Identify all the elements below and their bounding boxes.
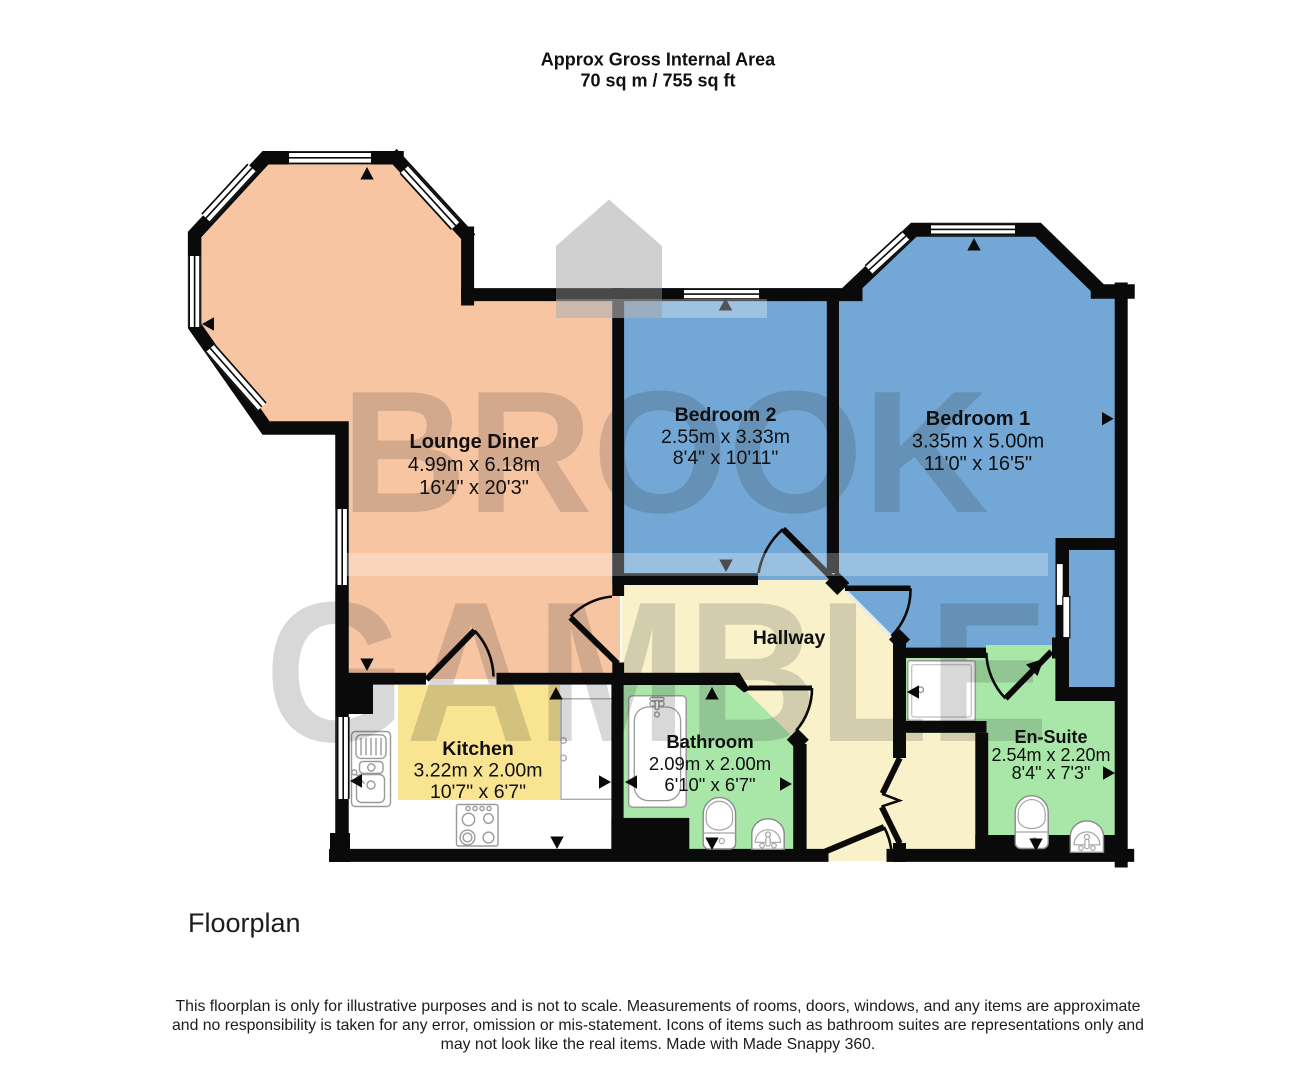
svg-text:Lounge Diner: Lounge Diner	[410, 431, 539, 453]
svg-text:and no responsibility is taken: and no responsibility is taken for any e…	[172, 1017, 1144, 1034]
svg-text:2.55m x 3.33m: 2.55m x 3.33m	[661, 426, 790, 448]
svg-text:70 sq m / 755 sq ft: 70 sq m / 755 sq ft	[580, 71, 735, 91]
svg-text:8'4" x 10'11": 8'4" x 10'11"	[673, 447, 779, 469]
svg-text:Floorplan: Floorplan	[188, 908, 301, 938]
svg-text:Bathroom: Bathroom	[666, 731, 753, 752]
svg-text:8'4" x 7'3": 8'4" x 7'3"	[1012, 763, 1091, 783]
svg-text:GAMBLE: GAMBLE	[265, 561, 1049, 784]
svg-text:6'10" x 6'7": 6'10" x 6'7"	[664, 774, 755, 795]
svg-text:En-Suite: En-Suite	[1014, 727, 1087, 747]
svg-text:Hallway: Hallway	[753, 627, 826, 649]
svg-text:This floorplan is only for ill: This floorplan is only for illustrative …	[176, 998, 1141, 1015]
svg-text:Kitchen: Kitchen	[442, 738, 514, 760]
svg-text:3.35m x 5.00m: 3.35m x 5.00m	[912, 431, 1044, 453]
svg-text:11'0" x 16'5": 11'0" x 16'5"	[924, 453, 1032, 475]
svg-text:16'4" x 20'3": 16'4" x 20'3"	[419, 477, 529, 499]
svg-text:2.54m x 2.20m: 2.54m x 2.20m	[991, 745, 1110, 765]
svg-text:2.09m x 2.00m: 2.09m x 2.00m	[649, 753, 771, 774]
svg-text:may not look like the real ite: may not look like the real items. Made w…	[441, 1036, 876, 1053]
svg-text:Bedroom 2: Bedroom 2	[675, 404, 777, 426]
svg-text:4.99m x 6.18m: 4.99m x 6.18m	[408, 454, 540, 476]
svg-text:Bedroom 1: Bedroom 1	[926, 408, 1030, 430]
svg-text:10'7" x 6'7": 10'7" x 6'7"	[430, 781, 526, 803]
svg-text:Approx Gross Internal Area: Approx Gross Internal Area	[541, 50, 776, 70]
svg-text:3.22m x 2.00m: 3.22m x 2.00m	[414, 760, 543, 782]
